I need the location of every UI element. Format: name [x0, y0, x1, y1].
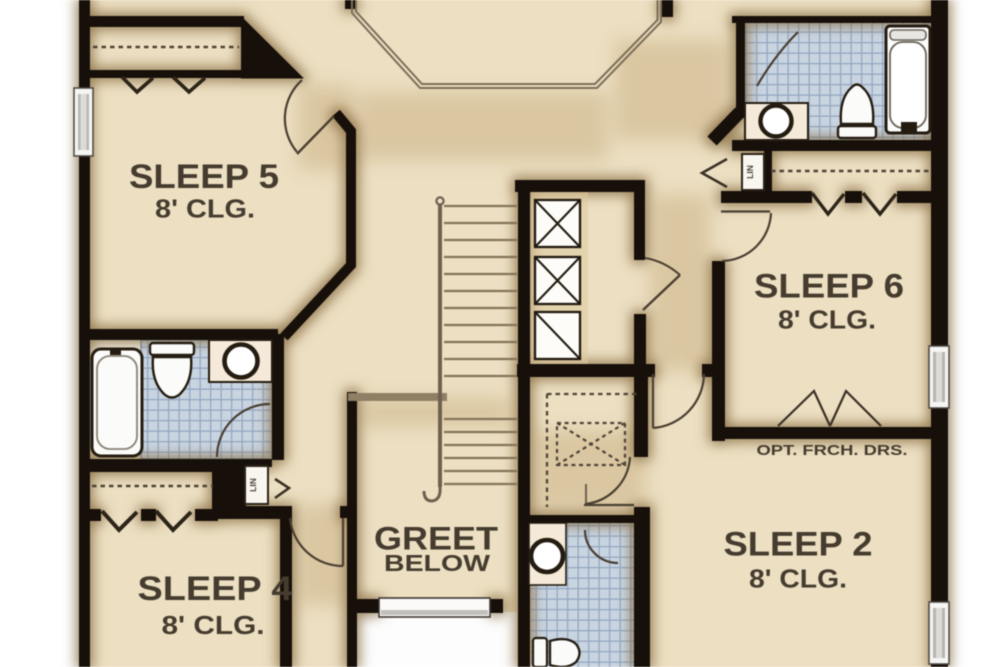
svg-text:8' CLG.: 8' CLG. [155, 194, 255, 224]
svg-text:SLEEP 6: SLEEP 6 [754, 268, 904, 306]
svg-text:8' CLG.: 8' CLG. [162, 610, 265, 640]
svg-text:SLEEP 5: SLEEP 5 [129, 158, 279, 196]
svg-text:SLEEP 4: SLEEP 4 [138, 570, 293, 608]
svg-text:LIN: LIN [248, 478, 258, 492]
svg-text:8' CLG.: 8' CLG. [749, 564, 847, 594]
svg-text:BELOW: BELOW [384, 550, 490, 576]
svg-text:8' CLG.: 8' CLG. [778, 305, 876, 335]
svg-text:LIN: LIN [745, 165, 755, 179]
svg-text:SLEEP 2: SLEEP 2 [724, 526, 873, 564]
svg-text:OPT. FRCH. DRS.: OPT. FRCH. DRS. [757, 442, 908, 459]
